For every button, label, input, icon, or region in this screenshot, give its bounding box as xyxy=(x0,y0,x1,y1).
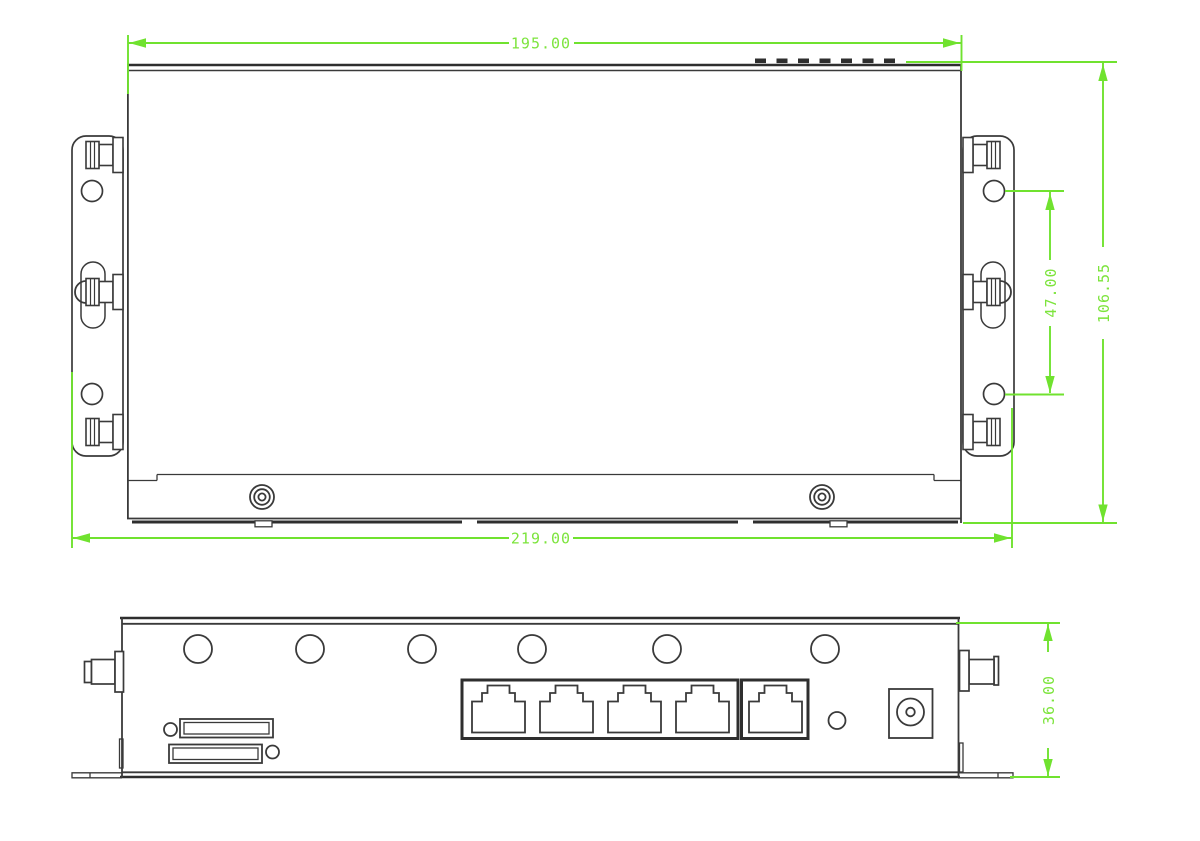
dim-label-body-width: 195.00 xyxy=(511,35,571,53)
vent-slot xyxy=(841,59,852,64)
drawing-canvas: 195.00 219.00 106.55 xyxy=(0,0,1200,841)
antenna-connector-right xyxy=(960,651,999,692)
rear-panel-face xyxy=(122,617,959,778)
rear-view: 36.00 xyxy=(72,617,1060,778)
vent-slot xyxy=(798,59,809,64)
dim-label-hole-spacing: 47.00 xyxy=(1042,267,1060,317)
left-mounting-bracket xyxy=(72,136,123,456)
vent-slot xyxy=(884,59,895,64)
dim-label-overall-width: 219.00 xyxy=(511,530,571,548)
base-foot-line xyxy=(132,521,958,527)
dim-label-overall-depth: 106.55 xyxy=(1095,263,1113,323)
top-view: 195.00 219.00 106.55 xyxy=(72,35,1117,549)
dimension-drawing: 195.00 219.00 106.55 xyxy=(0,0,1200,841)
dim-panel-height: 36.00 xyxy=(956,623,1060,777)
vent-slot xyxy=(863,59,874,64)
right-fold-tab xyxy=(960,743,964,772)
vent-slot xyxy=(777,59,788,64)
right-mounting-bracket xyxy=(963,136,1014,456)
right-foot xyxy=(958,773,1013,778)
left-foot xyxy=(72,773,122,778)
vent-slot xyxy=(755,59,766,64)
vent-slot xyxy=(820,59,831,64)
vent-slots xyxy=(755,59,895,64)
dim-label-panel-height: 36.00 xyxy=(1040,675,1058,725)
enclosure-body xyxy=(127,59,962,527)
antenna-connector-left xyxy=(85,652,124,693)
